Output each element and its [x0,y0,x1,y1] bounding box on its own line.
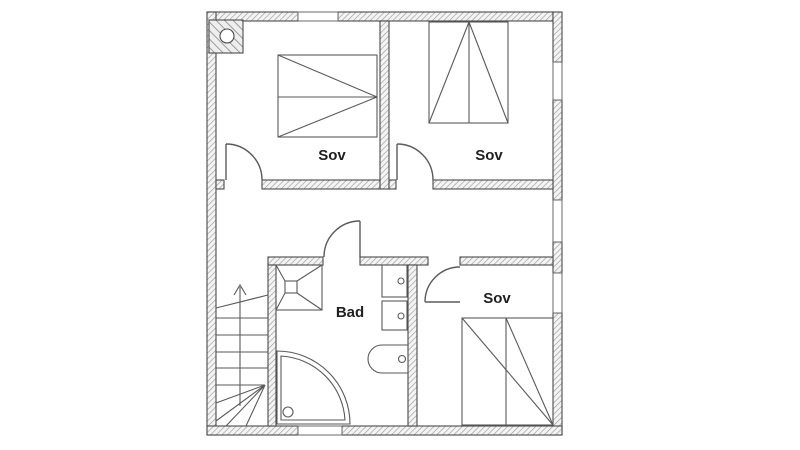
wall-stub [216,180,224,189]
bathroom-fixtures [276,265,408,424]
wall-segment [433,180,553,189]
stair-break-line [216,295,268,308]
wall-right-segment [553,12,562,62]
window [553,62,562,100]
wall-bedroom-divider [380,21,389,189]
wall-right-segment [553,313,562,435]
wall-bottom-left-segment [207,426,298,435]
bed-bedroom-top-right [429,22,508,123]
wall-left [207,12,216,435]
wall-bathroom-top [268,257,323,265]
chimney-flue [220,29,234,43]
bed-bedroom-bottom-right [462,318,553,425]
door-swing-bedroom-bottom-right [425,267,460,302]
wall-bathroom-top [360,257,428,265]
room-label-bedroom-left: Sov [318,147,346,164]
wall-top-right-segment [338,12,553,21]
shower-tray-with-drain [276,265,322,310]
floor-drain [283,407,293,417]
stair-winder [226,385,265,426]
washer-cabinet [382,265,407,297]
chimney [209,20,243,53]
wall-right-segment [553,100,562,200]
floor-plan-canvas: Sov Sov Sov Bad [0,0,800,450]
washer-cabinet [382,301,407,330]
windows [298,12,562,435]
window [553,273,562,313]
floor-plan: Sov Sov Sov Bad [0,0,800,450]
window [553,200,562,242]
corner-shower [277,351,350,424]
door-swing-bedroom-left [226,144,262,180]
winder-staircase [216,285,268,426]
toilet [368,345,408,373]
door-swing-bedroom-top-right [397,144,433,180]
room-label-bathroom: Bad [336,304,364,321]
window [298,426,342,435]
room-label-bedroom-top-right: Sov [475,147,503,164]
doors [226,144,460,302]
wall-stub [389,180,396,189]
wall-segment [262,180,380,189]
wall-bathroom-left [268,265,276,426]
wall-bedroom3-top [460,257,553,265]
bed-bedroom-left [278,55,377,137]
wall-bottom-right-segment [342,426,562,435]
door-swing-bathroom [324,221,360,257]
wall-bathroom-right [408,265,417,426]
room-label-bedroom-bottom-right: Sov [483,290,511,307]
wall-right-segment [553,242,562,273]
window [298,12,338,21]
